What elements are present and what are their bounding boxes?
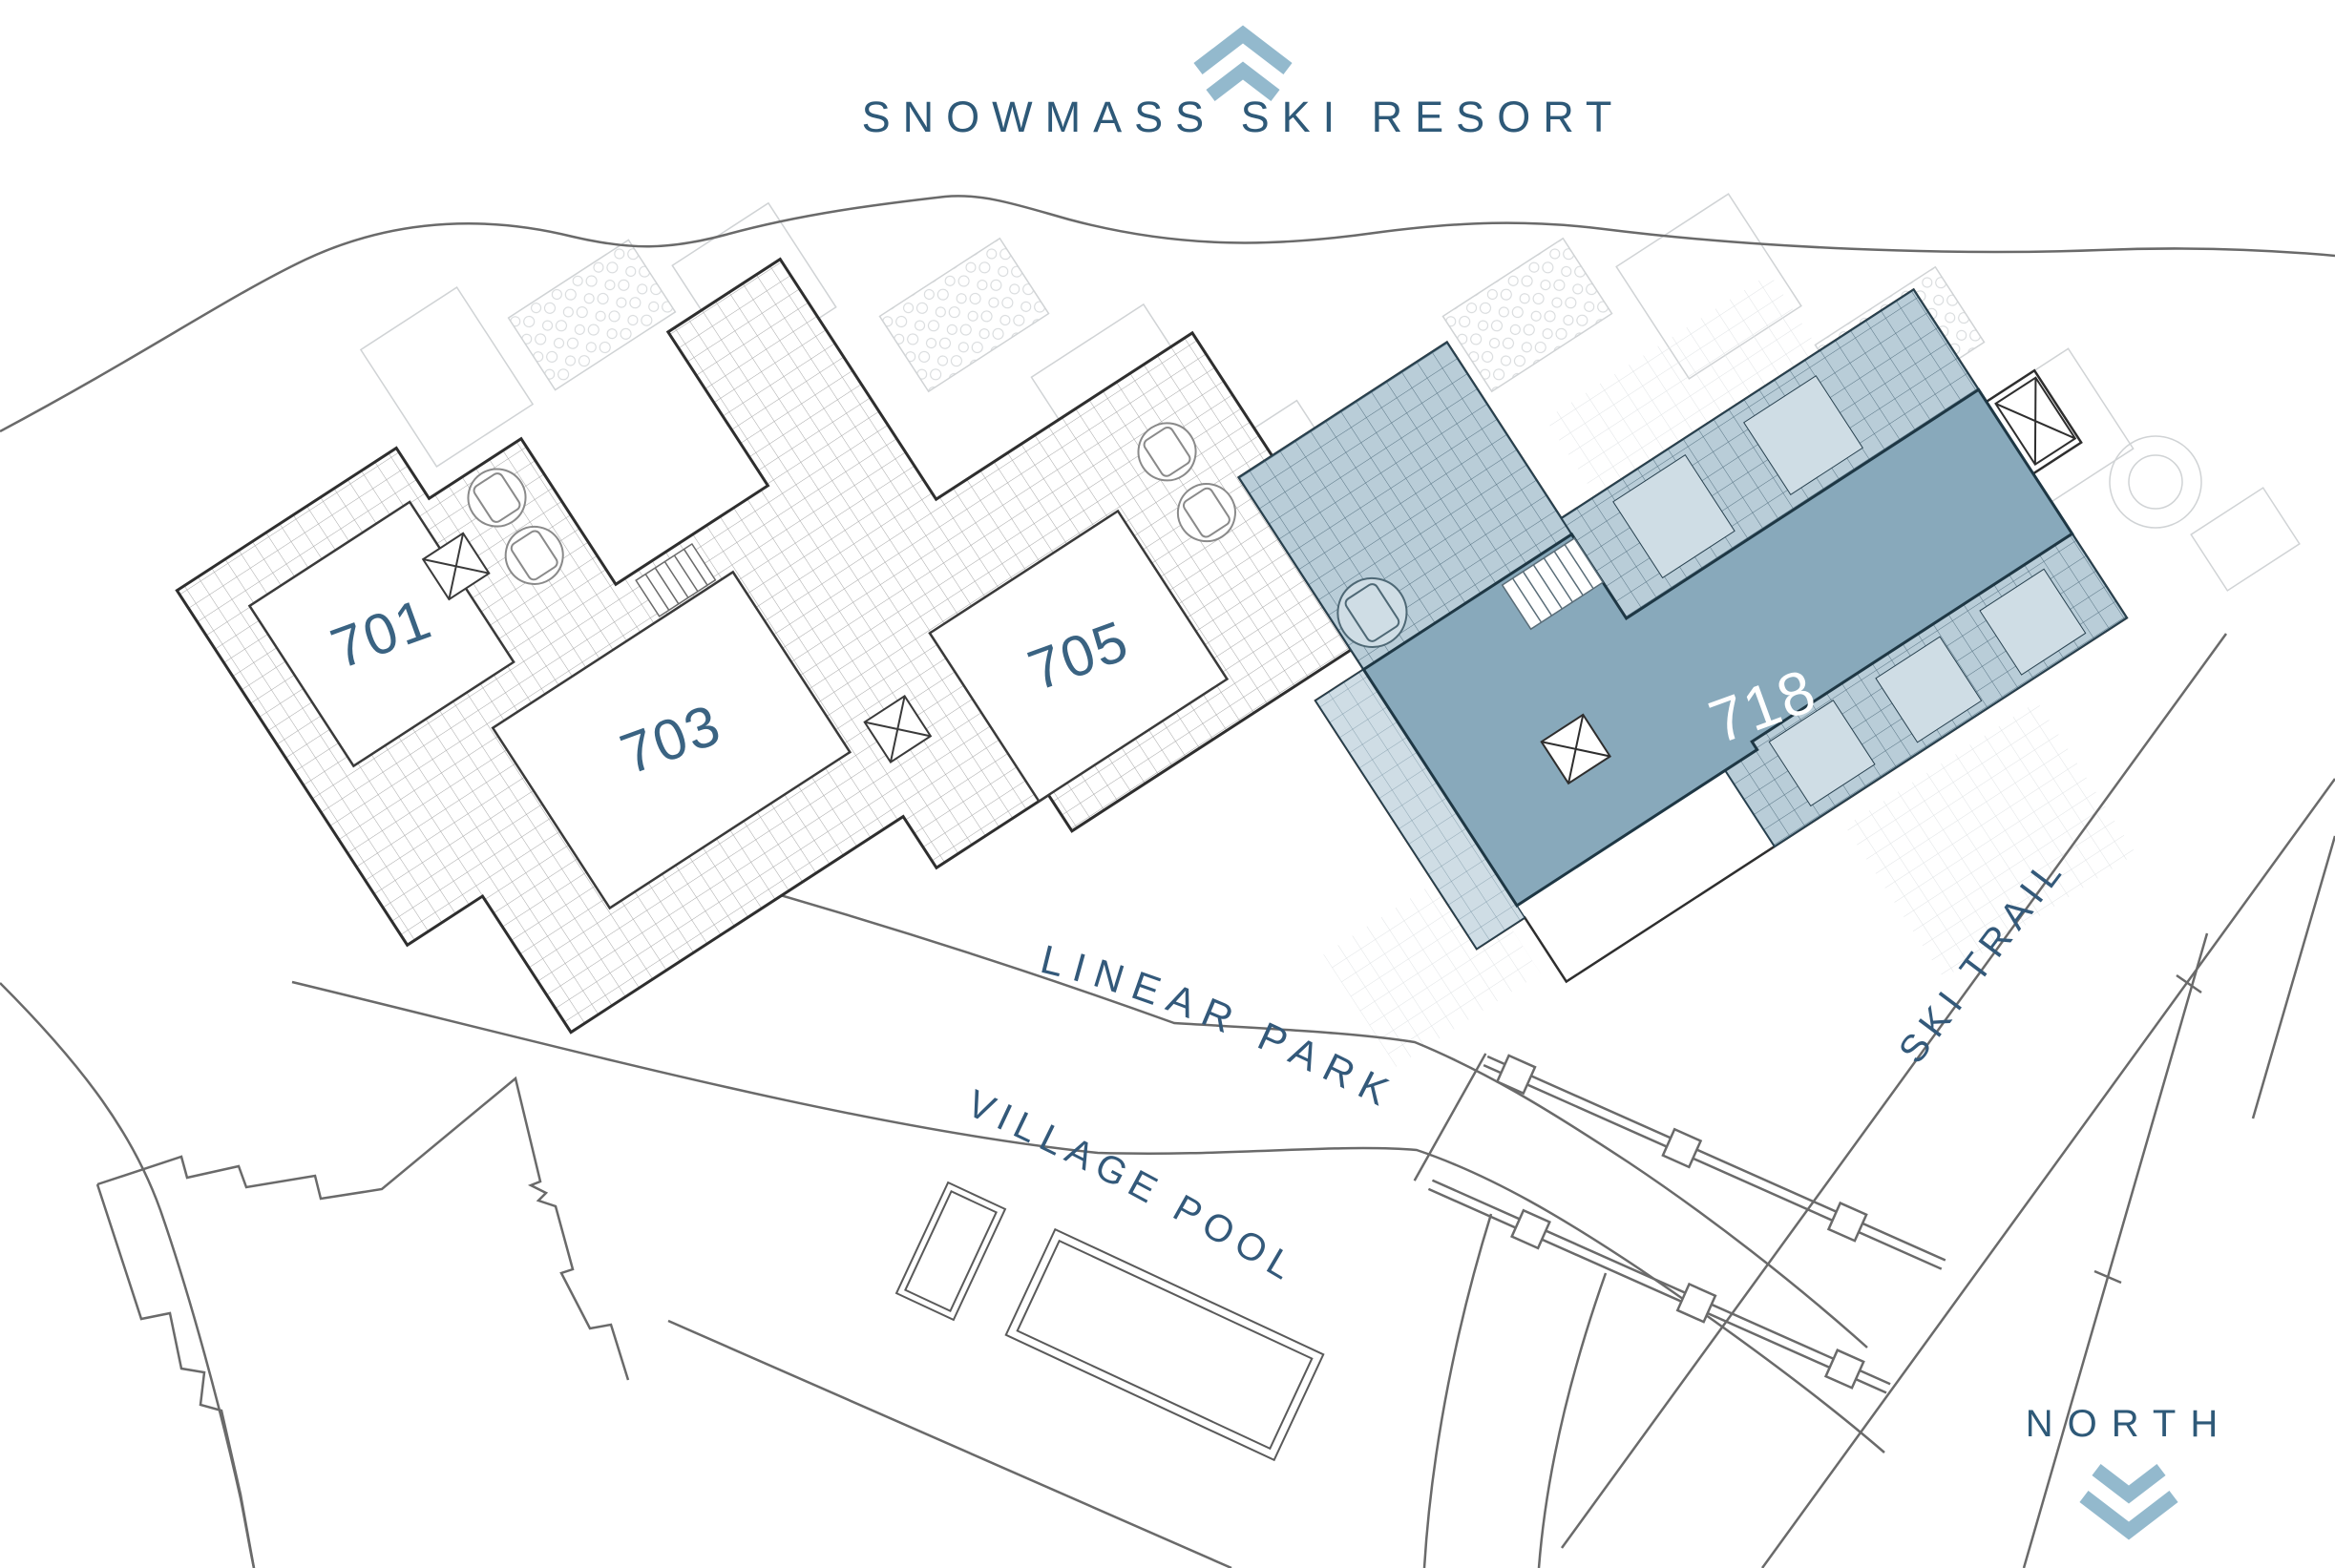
double-chevron-up-icon <box>1198 34 1288 95</box>
resort-title: SNOWMASS SKI RESORT <box>862 93 1625 141</box>
double-chevron-down-icon <box>2084 1470 2174 1531</box>
path-spur-west <box>1424 1214 1491 1568</box>
road-linear-park-lower <box>292 982 1884 1453</box>
village-pool-label: VILLAGE POOL <box>960 1082 1305 1291</box>
building-southwest-outline <box>97 1078 628 1568</box>
north-label: NORTH <box>2026 1403 2232 1445</box>
site-plan-canvas: 701 703 705 <box>0 0 2335 1568</box>
site-plan-page: 701 703 705 <box>0 0 2335 1568</box>
faint-spa-circle <box>2110 436 2201 528</box>
boardwalk <box>1410 1041 1949 1402</box>
compass: NORTH <box>2026 1403 2232 1531</box>
trail-line-far-east <box>2024 933 2207 1568</box>
pool-small <box>896 1182 1005 1320</box>
trail-line-edge <box>2253 836 2335 1119</box>
resort-header: SNOWMASS SKI RESORT <box>862 34 1625 141</box>
path-spur-east <box>1539 1273 1606 1568</box>
